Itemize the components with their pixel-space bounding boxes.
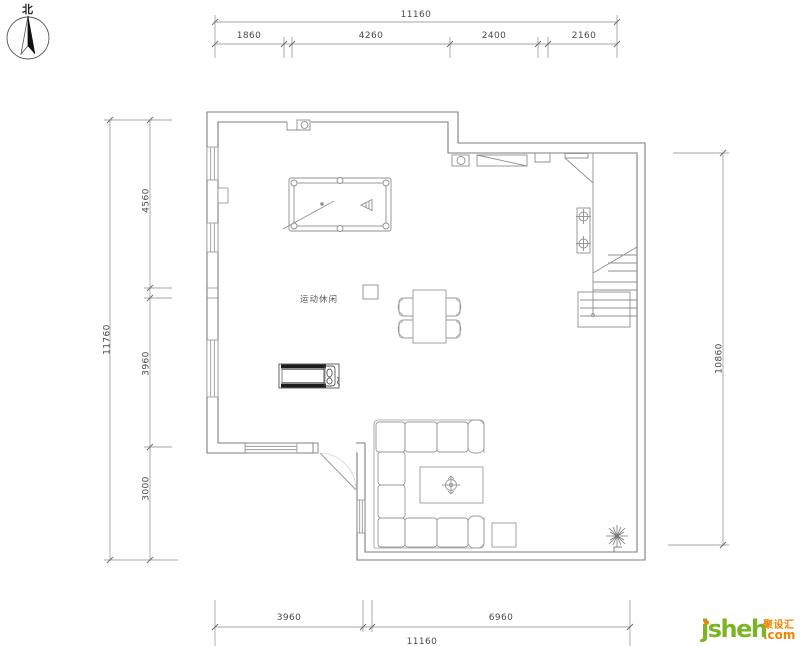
floor-plan-drawing [0, 0, 800, 646]
dim-bottom-seg-1: 3960 [261, 613, 317, 624]
wardrobe [452, 153, 550, 166]
door-opening [317, 440, 356, 455]
room-label: 运动休闲 [300, 293, 338, 305]
dim-left-seg-2: 3960 [142, 336, 153, 392]
dim-right-total: 10860 [715, 331, 726, 387]
side-table [492, 523, 516, 547]
dim-bottom-total: 11160 [394, 637, 450, 646]
staircase [565, 153, 637, 327]
coffee-table [420, 467, 483, 503]
dim-left-seg-3: 3000 [142, 461, 153, 517]
dim-top-seg-3: 2400 [466, 31, 522, 42]
dim-left-seg-1: 4560 [142, 173, 153, 229]
plant-icon [606, 525, 628, 547]
dim-top-total: 11160 [388, 10, 444, 21]
treadmill [279, 364, 340, 388]
north-arrow-icon [7, 16, 49, 59]
dining-set [398, 290, 461, 343]
north-label: 北 [22, 1, 33, 17]
dim-left-total: 11760 [103, 312, 114, 368]
dim-top-seg-1: 1860 [221, 31, 277, 42]
dim-top-seg-2: 4260 [343, 31, 399, 42]
dim-top-seg-4: 2160 [556, 31, 612, 42]
wall-niche [287, 119, 311, 131]
billiard-table [283, 178, 391, 232]
floor-plan-page: 北 运动休闲 11160 1860 4260 2400 2160 11760 4… [0, 0, 800, 646]
sofa-set [374, 420, 484, 548]
logo-brand-text: jsheh [701, 615, 766, 643]
jsheh-logo: jsheh 聚设汇 .com [701, 613, 799, 646]
column [363, 285, 378, 299]
logo-j-dot [704, 620, 709, 625]
dim-bottom-seg-2: 6960 [473, 613, 529, 624]
logo-com-text: .com [763, 628, 795, 642]
